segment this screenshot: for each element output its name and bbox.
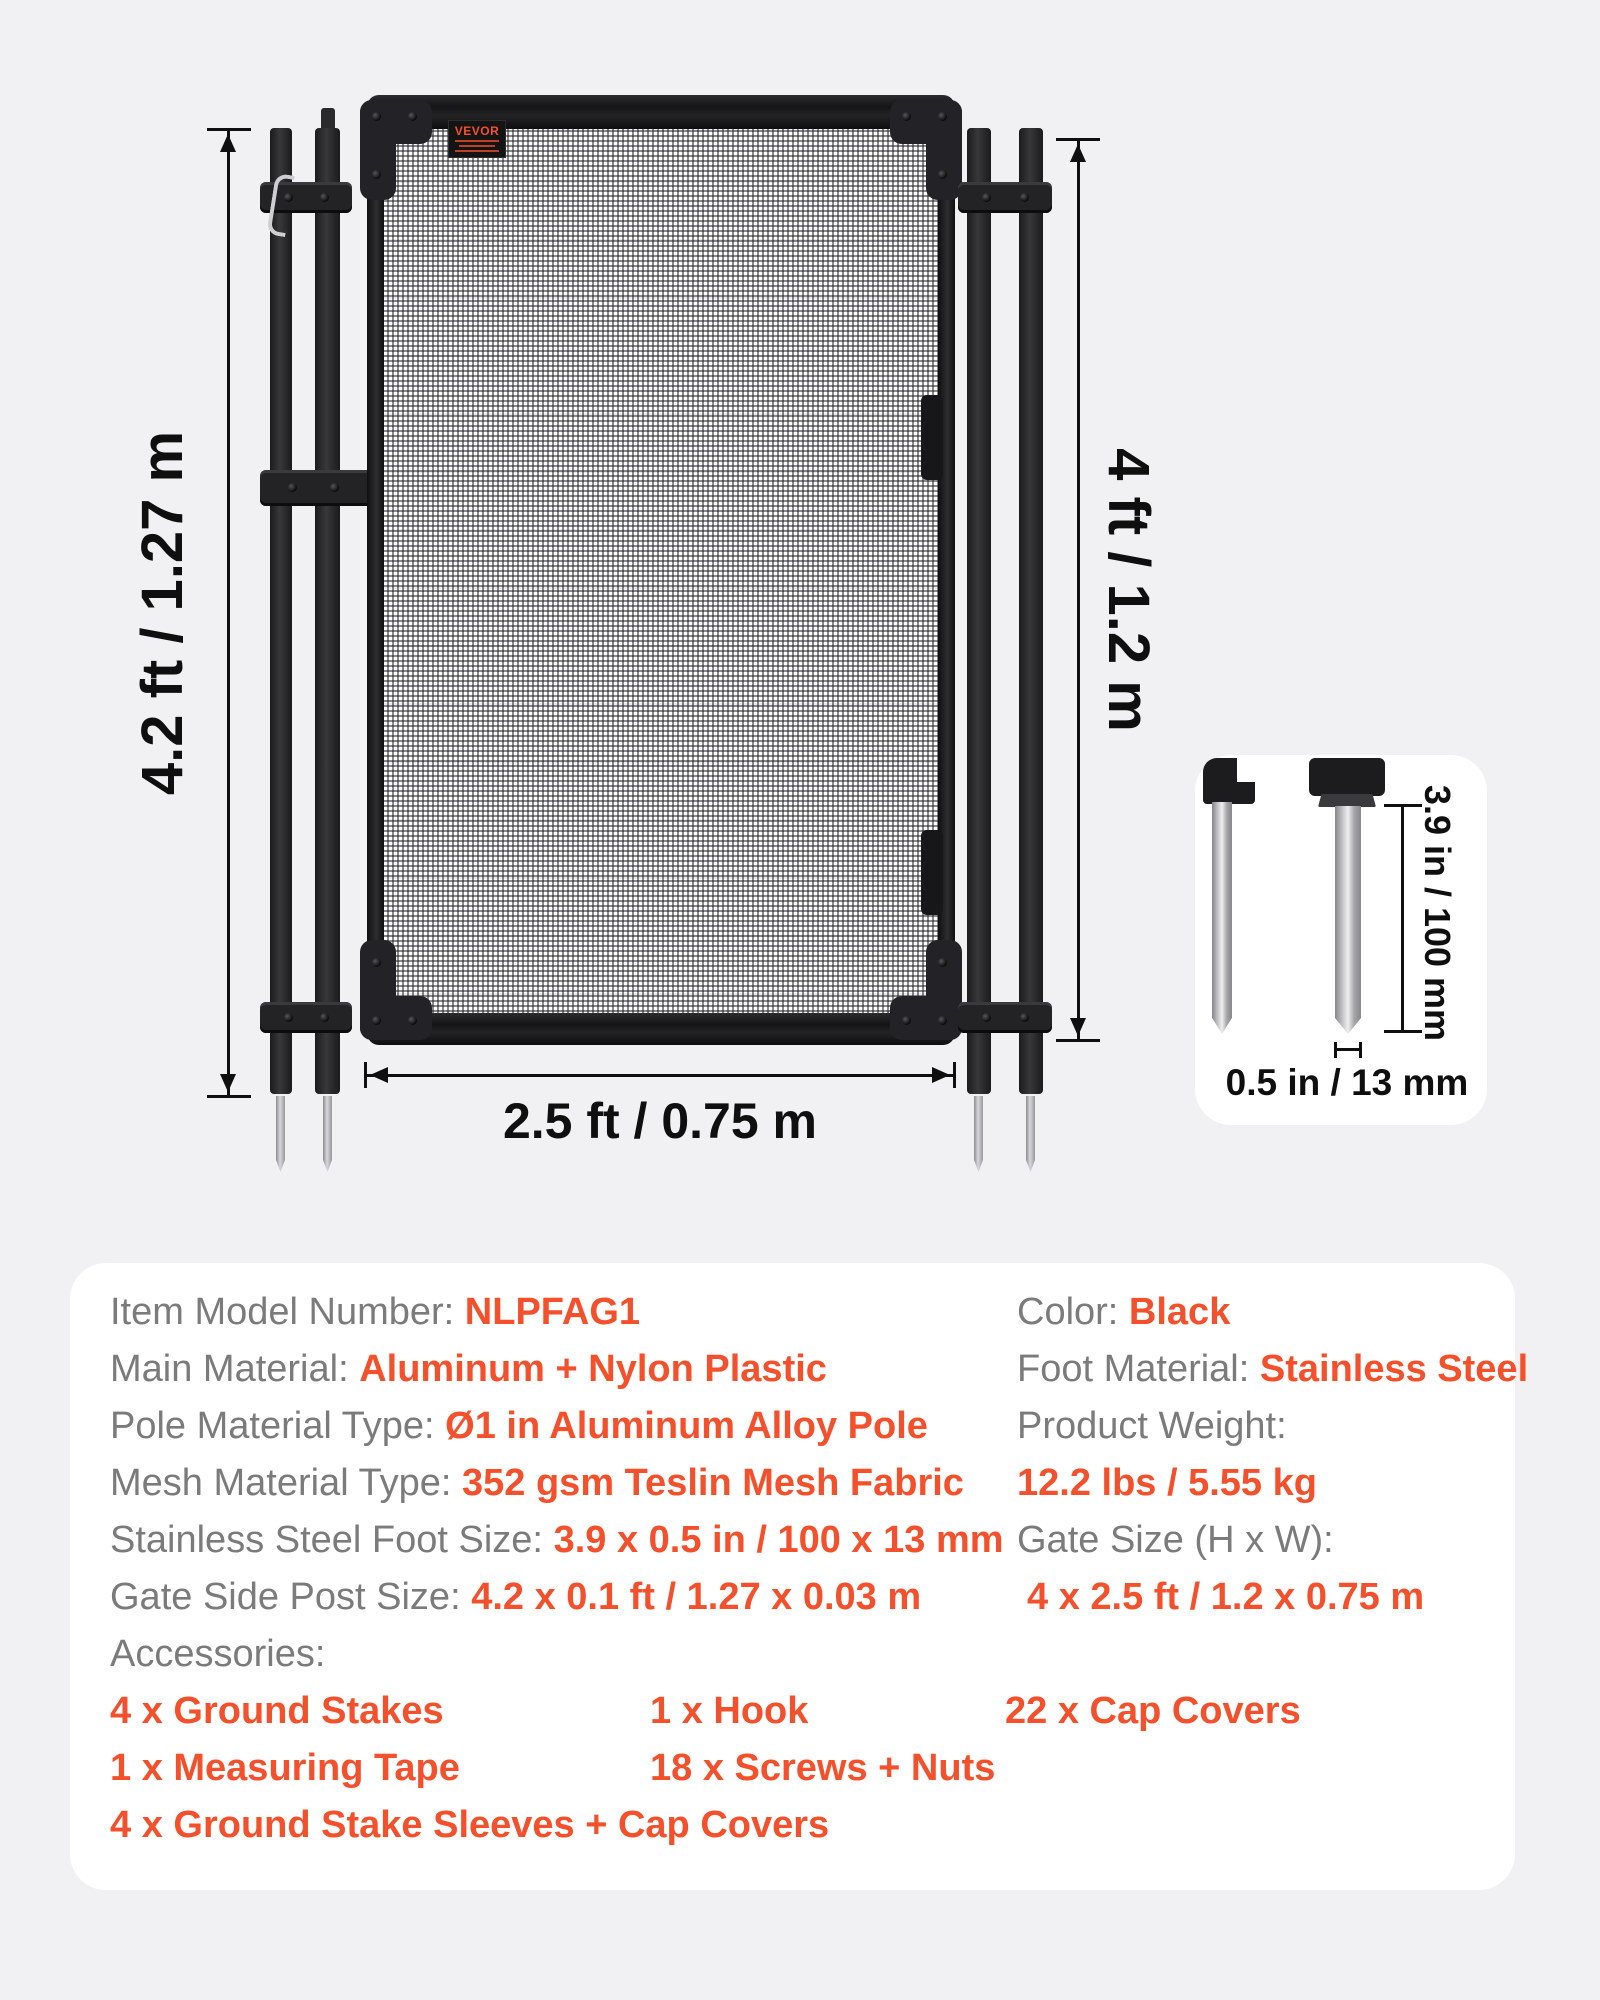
- left-bottom-bracket: [260, 1002, 352, 1033]
- dim-stake-width-line: [1336, 1048, 1360, 1051]
- spec-main-material-label: Main Material:: [110, 1348, 359, 1390]
- gate-bottom-bar: [367, 1013, 955, 1045]
- gate-corner-bottom-left: [360, 940, 432, 1040]
- dim-gate-width-arrow-right: [932, 1067, 950, 1083]
- spec-color: Color: Black: [1017, 1288, 1230, 1336]
- accessory-stake-sleeves: 4 x Ground Stake Sleeves + Cap Covers: [110, 1801, 829, 1849]
- spec-product-weight-heading: Product Weight:: [1017, 1402, 1287, 1450]
- spec-item-model-label: Item Model Number:: [110, 1291, 465, 1333]
- gate-corner-bottom-right: [890, 940, 962, 1040]
- gate-corner-top-left: [360, 100, 432, 200]
- spec-product-weight-value-line: 12.2 lbs / 5.55 kg: [1017, 1459, 1317, 1507]
- dim-gate-width-right-cap: [953, 1062, 956, 1088]
- left-ground-stake-2: [323, 1096, 332, 1172]
- spec-color-value: Black: [1129, 1291, 1230, 1333]
- dim-post-height-line: [227, 130, 230, 1096]
- spec-main-material: Main Material: Aluminum + Nylon Plastic: [110, 1345, 827, 1393]
- spec-accessories-heading: Accessories:: [110, 1630, 325, 1678]
- right-bottom-bracket: [958, 1002, 1052, 1033]
- spec-foot-size-label: Stainless Steel Foot Size:: [110, 1519, 554, 1561]
- spec-foot-material: Foot Material: Stainless Steel: [1017, 1345, 1528, 1393]
- spec-foot-size: Stainless Steel Foot Size: 3.9 x 0.5 in …: [110, 1516, 1004, 1564]
- dim-post-height-arrow-up: [220, 134, 236, 152]
- brand-label-text: VEVOR: [455, 125, 500, 137]
- stake-detail-corner-cap-notch: [1237, 758, 1255, 782]
- spec-post-size-label: Gate Side Post Size:: [110, 1576, 471, 1618]
- dim-post-height-arrow-down: [220, 1074, 236, 1092]
- spec-mesh-material-value: 352 gsm Teslin Mesh Fabric: [462, 1462, 964, 1504]
- stake-detail-square-cap: [1309, 758, 1385, 796]
- right-outer-post: [1019, 128, 1043, 1094]
- accessory-screws-nuts: 18 x Screws + Nuts: [650, 1744, 995, 1792]
- spec-gate-size-value-line: 4 x 2.5 ft / 1.2 x 0.75 m: [1017, 1573, 1424, 1621]
- spec-foot-material-label: Foot Material:: [1017, 1348, 1260, 1390]
- gate-corner-top-right: [890, 100, 962, 200]
- right-ground-stake-1: [974, 1096, 983, 1172]
- spec-foot-size-value: 3.9 x 0.5 in / 100 x 13 mm: [554, 1519, 1004, 1561]
- spec-pole-material: Pole Material Type: Ø1 in Aluminum Alloy…: [110, 1402, 928, 1450]
- spec-product-weight-value: 12.2 lbs / 5.55 kg: [1017, 1462, 1317, 1504]
- product-infographic: 4.2 ft / 1.27 m: [0, 0, 1600, 2000]
- spec-product-weight-label: Product Weight:: [1017, 1405, 1287, 1447]
- spec-pole-material-label: Pole Material Type:: [110, 1405, 445, 1447]
- brand-label: VEVOR: [448, 120, 506, 158]
- spec-accessories-heading-label: Accessories:: [110, 1633, 325, 1675]
- dim-stake-length-label: 3.9 in / 100 mm: [1415, 763, 1459, 1063]
- spec-main-material-value: Aluminum + Nylon Plastic: [359, 1348, 827, 1390]
- spec-item-model-value: NLPFAG1: [465, 1291, 640, 1333]
- spec-post-size-value: 4.2 x 0.1 ft / 1.27 x 0.03 m: [471, 1576, 921, 1618]
- spec-color-label: Color:: [1017, 1291, 1129, 1333]
- dim-gate-width-arrow-left: [370, 1067, 388, 1083]
- gate-left-rail: [367, 113, 384, 1027]
- dim-gate-height-line: [1077, 140, 1080, 1040]
- accessory-measuring-tape: 1 x Measuring Tape: [110, 1744, 460, 1792]
- spec-mesh-material: Mesh Material Type: 352 gsm Teslin Mesh …: [110, 1459, 964, 1507]
- mesh-gate: VEVOR: [367, 95, 955, 1045]
- brand-label-fineprint-line: [459, 145, 495, 147]
- right-ground-stake-2: [1026, 1096, 1035, 1172]
- accessory-cap-covers: 22 x Cap Covers: [1005, 1687, 1301, 1735]
- right-top-bracket: [958, 182, 1052, 213]
- brand-label-fineprint-line: [455, 140, 499, 142]
- dim-stake-length-line: [1401, 806, 1404, 1032]
- spec-card: Item Model Number: NLPFAG1 Main Material…: [70, 1263, 1515, 1890]
- gate-hinge-lower: [921, 830, 943, 915]
- accessory-ground-stakes: 4 x Ground Stakes: [110, 1687, 444, 1735]
- dim-post-height-bottom-cap: [207, 1095, 251, 1098]
- dim-gate-height-arrow-up: [1070, 144, 1086, 162]
- spec-pole-material-value: Ø1 in Aluminum Alloy Pole: [445, 1405, 928, 1447]
- spec-item-model: Item Model Number: NLPFAG1: [110, 1288, 640, 1336]
- spec-post-size: Gate Side Post Size: 4.2 x 0.1 ft / 1.27…: [110, 1573, 921, 1621]
- right-inner-post: [967, 128, 991, 1094]
- dim-post-height-label: 4.2 ft / 1.27 m: [133, 313, 193, 913]
- dim-stake-width-label: 0.5 in / 13 mm: [1197, 1062, 1497, 1104]
- accessory-hook: 1 x Hook: [650, 1687, 808, 1735]
- dim-gate-height-arrow-down: [1070, 1018, 1086, 1036]
- dim-gate-width-line: [366, 1074, 954, 1077]
- gate-mesh-panel: [382, 123, 940, 1017]
- gate-hinge-upper: [921, 395, 943, 480]
- dim-gate-height-label: 4 ft / 1.2 m: [1098, 290, 1158, 890]
- spec-foot-material-value: Stainless Steel: [1260, 1348, 1528, 1390]
- spec-mesh-material-label: Mesh Material Type:: [110, 1462, 462, 1504]
- stake-detail-sleeve: [1318, 794, 1376, 807]
- stake-detail-pin-left: [1212, 802, 1232, 1034]
- spec-gate-size-label: Gate Size (H x W):: [1017, 1519, 1334, 1561]
- spec-gate-size-value: 4 x 2.5 ft / 1.2 x 0.75 m: [1027, 1576, 1424, 1618]
- dim-stake-width-right-cap: [1359, 1042, 1362, 1058]
- left-outer-post: [270, 128, 292, 1094]
- brand-label-fineprint-line: [455, 150, 499, 152]
- left-ground-stake-1: [276, 1096, 285, 1172]
- stake-detail-pin-right: [1335, 806, 1361, 1034]
- dim-gate-height-bottom-cap: [1056, 1039, 1100, 1042]
- dim-gate-width-label: 2.5 ft / 0.75 m: [460, 1092, 860, 1150]
- left-inner-post: [315, 128, 340, 1094]
- spec-gate-size-heading: Gate Size (H x W):: [1017, 1516, 1334, 1564]
